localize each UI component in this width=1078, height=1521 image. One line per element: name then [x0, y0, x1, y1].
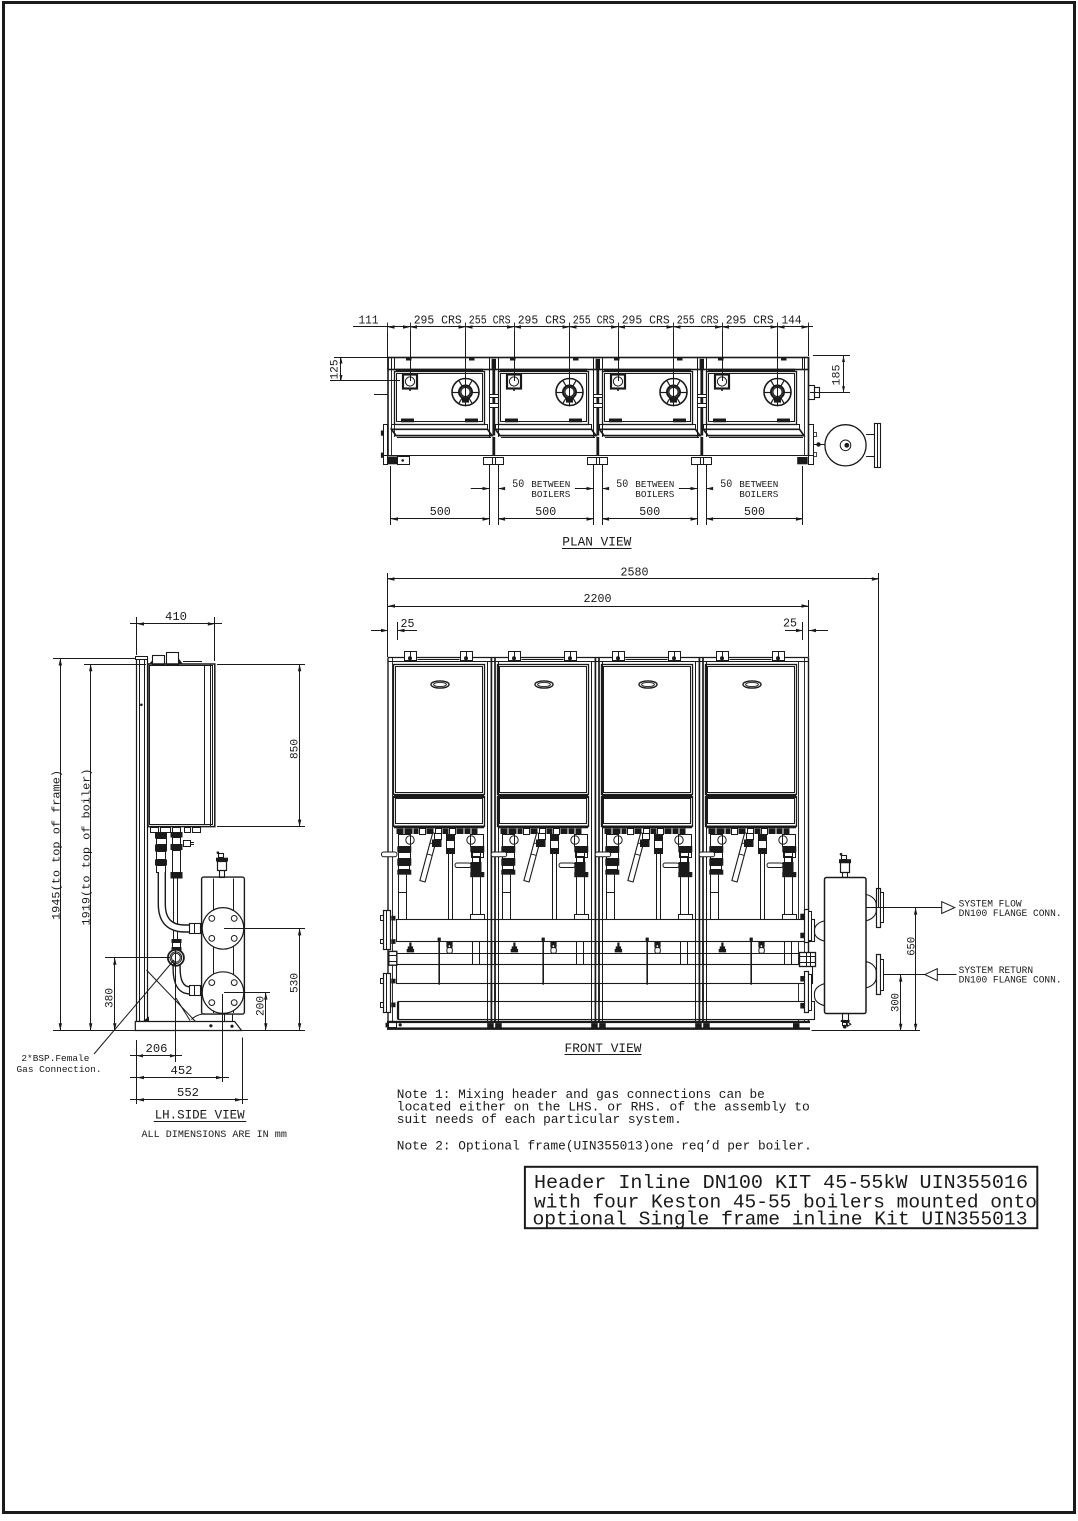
svg-text:300: 300 [891, 993, 903, 1012]
svg-text:255 CRS: 255 CRS [677, 315, 719, 328]
svg-text:PLAN VIEW: PLAN VIEW [562, 535, 631, 550]
svg-text:295 CRS: 295 CRS [414, 315, 462, 328]
svg-text:255 CRS: 255 CRS [573, 315, 615, 328]
svg-text:FRONT VIEW: FRONT VIEW [565, 1041, 642, 1056]
svg-text:200: 200 [256, 996, 268, 1016]
svg-text:suit needs of each particular: suit needs of each particular system. [397, 1112, 682, 1127]
svg-text:1945(to top of frame): 1945(to top of frame) [52, 770, 64, 920]
svg-text:BOILERS: BOILERS [739, 490, 778, 500]
svg-text:185: 185 [832, 365, 844, 386]
svg-text:850: 850 [290, 739, 302, 759]
svg-text:50: 50 [616, 479, 628, 491]
svg-text:295 CRS: 295 CRS [726, 315, 774, 328]
svg-text:BOILERS: BOILERS [635, 490, 674, 500]
svg-text:BETWEEN: BETWEEN [531, 480, 570, 490]
svg-text:DN100 FLANGE CONN.: DN100 FLANGE CONN. [959, 909, 1062, 920]
svg-text:500: 500 [535, 506, 556, 519]
svg-text:25: 25 [783, 618, 797, 631]
svg-text:BOILERS: BOILERS [531, 490, 570, 500]
svg-text:500: 500 [430, 506, 451, 519]
svg-text:295 CRS: 295 CRS [518, 315, 566, 328]
svg-text:50: 50 [512, 479, 524, 491]
svg-text:optional Single frame inline K: optional Single frame inline Kit UIN3550… [533, 1209, 1028, 1231]
svg-text:125: 125 [330, 360, 342, 380]
svg-text:410: 410 [165, 611, 187, 624]
svg-text:50: 50 [720, 479, 732, 491]
svg-text:2*BSP.Female: 2*BSP.Female [21, 1053, 89, 1064]
svg-text:144: 144 [782, 315, 802, 328]
svg-text:530: 530 [290, 973, 302, 993]
svg-text:Gas Connection.: Gas Connection. [17, 1064, 102, 1075]
svg-text:Note 2: Optional frame(UIN3550: Note 2: Optional frame(UIN355013)one req… [397, 1139, 812, 1154]
svg-text:500: 500 [639, 506, 660, 519]
svg-text:452: 452 [171, 1065, 193, 1078]
svg-text:25: 25 [401, 618, 415, 631]
svg-text:380: 380 [105, 988, 117, 1008]
svg-text:DN100 FLANGE CONN.: DN100 FLANGE CONN. [959, 975, 1062, 986]
svg-text:552: 552 [177, 1087, 199, 1100]
svg-text:111: 111 [359, 315, 379, 328]
svg-text:BETWEEN: BETWEEN [739, 480, 778, 490]
svg-text:2200: 2200 [584, 593, 612, 606]
svg-text:255 CRS: 255 CRS [469, 315, 511, 328]
svg-text:206: 206 [146, 1043, 168, 1056]
svg-text:BETWEEN: BETWEEN [635, 480, 674, 490]
svg-text:295 CRS: 295 CRS [622, 315, 670, 328]
svg-text:500: 500 [744, 506, 765, 519]
svg-text:LH.SIDE VIEW: LH.SIDE VIEW [155, 1108, 245, 1123]
svg-text:1919(to top of boiler): 1919(to top of boiler) [82, 769, 94, 926]
svg-text:650: 650 [907, 937, 919, 956]
svg-text:2580: 2580 [621, 566, 649, 579]
svg-text:ALL DIMENSIONS ARE IN mm: ALL DIMENSIONS ARE IN mm [142, 1129, 287, 1141]
